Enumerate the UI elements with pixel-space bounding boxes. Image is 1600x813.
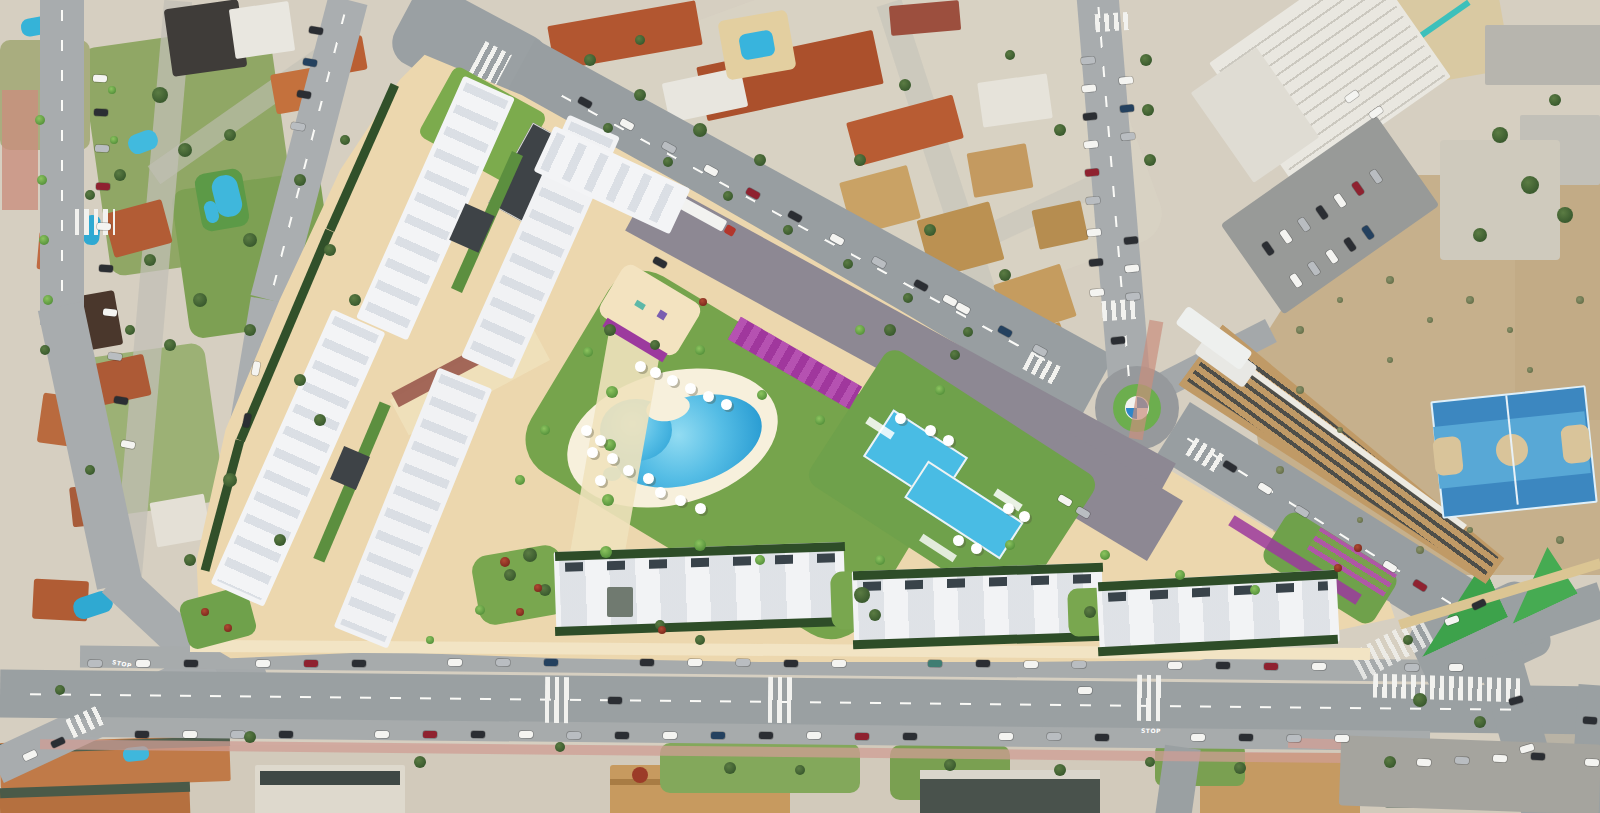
tree <box>754 154 766 166</box>
car <box>95 144 109 151</box>
tree <box>224 129 236 141</box>
car <box>640 658 654 665</box>
tree <box>1384 756 1396 768</box>
car <box>1082 84 1097 92</box>
palm-tree <box>39 235 49 245</box>
car <box>1287 734 1301 741</box>
car <box>471 730 485 737</box>
aerial-map: STOPSTOP <box>0 0 1600 813</box>
crosswalk-south-2 <box>768 677 794 723</box>
car <box>423 730 437 737</box>
tree <box>85 465 95 475</box>
tree <box>223 473 237 487</box>
tree <box>555 742 565 752</box>
car <box>759 731 773 738</box>
tree <box>152 87 168 103</box>
car <box>1124 236 1139 244</box>
red-flower-bush <box>658 626 666 634</box>
crosswalk-left <box>75 209 115 235</box>
car <box>1121 132 1136 140</box>
tree <box>294 174 306 186</box>
palm-tree <box>1250 585 1260 595</box>
car <box>1083 112 1098 120</box>
car <box>135 730 149 737</box>
tree <box>963 327 973 337</box>
car <box>1081 56 1096 64</box>
tree <box>1084 606 1096 618</box>
palm-tree <box>1175 570 1185 580</box>
tree <box>144 254 156 266</box>
tree <box>854 587 870 603</box>
palm-tree <box>600 546 612 558</box>
car <box>88 659 102 666</box>
tree <box>795 765 805 775</box>
tree <box>55 685 65 695</box>
tree <box>294 374 306 386</box>
sun-umbrella <box>595 435 606 446</box>
bm-dark-row-edge <box>920 770 1100 779</box>
car <box>375 730 389 737</box>
tree <box>724 762 736 774</box>
palm-tree <box>475 605 485 615</box>
tl-roof-white-1 <box>229 1 295 59</box>
car <box>544 658 558 665</box>
car <box>1095 733 1109 740</box>
car <box>1191 733 1205 740</box>
car <box>688 658 702 665</box>
sun-umbrella <box>703 391 714 402</box>
car <box>93 74 107 81</box>
car <box>1583 716 1597 724</box>
car <box>855 732 869 739</box>
car <box>448 658 462 665</box>
shrub <box>1427 317 1433 323</box>
tree <box>1005 50 1015 60</box>
palm-tree <box>426 636 434 644</box>
car <box>807 731 821 738</box>
tree <box>164 339 176 351</box>
red-flower-bush <box>500 557 510 567</box>
tr-school-bldg-1 <box>1485 25 1600 85</box>
tree <box>695 635 705 645</box>
stop-marking-2: STOP <box>1137 727 1165 735</box>
shrub <box>1387 357 1393 363</box>
palm-tree <box>602 494 614 506</box>
shrub <box>1467 527 1473 533</box>
tree <box>1473 228 1487 242</box>
car <box>1126 292 1141 300</box>
tree <box>244 731 256 743</box>
tree <box>340 135 350 145</box>
car <box>496 658 510 665</box>
tree <box>1492 127 1508 143</box>
shrub <box>1296 386 1304 394</box>
car <box>1119 76 1134 84</box>
car <box>96 182 110 189</box>
rowA-entry-bldg <box>607 587 633 617</box>
car <box>736 658 750 665</box>
car <box>1089 258 1104 266</box>
car <box>1090 288 1105 296</box>
red-flower-bush <box>1354 544 1362 552</box>
tr-school-court <box>1440 140 1560 260</box>
tree <box>783 225 793 235</box>
futsal-key-left <box>1432 436 1464 477</box>
car <box>1168 661 1182 668</box>
red-flower-bush <box>1334 564 1342 572</box>
tree <box>1054 124 1066 136</box>
tree <box>349 294 361 306</box>
car <box>256 659 270 666</box>
tree <box>869 609 881 621</box>
tree <box>1145 757 1155 767</box>
red-flower-bush <box>224 624 232 632</box>
sun-umbrella <box>925 425 936 436</box>
sun-umbrella <box>643 473 654 484</box>
car <box>784 659 798 666</box>
sun-umbrella <box>667 375 678 386</box>
sun-umbrella <box>721 399 732 410</box>
palm-tree <box>1005 540 1015 550</box>
bm-white-bldg-panels <box>260 771 400 785</box>
tree <box>604 324 616 336</box>
tree <box>1142 104 1154 116</box>
tree <box>899 79 911 91</box>
car <box>832 659 846 666</box>
car <box>1125 264 1140 272</box>
palm-tree <box>606 386 618 398</box>
tree <box>324 244 336 256</box>
tree <box>1413 693 1427 707</box>
car <box>183 730 197 737</box>
palm-tree <box>108 86 116 94</box>
shrub <box>1576 296 1584 304</box>
palm-tree <box>604 439 616 451</box>
tree <box>314 414 326 426</box>
tree <box>244 324 256 336</box>
palm-tree <box>855 325 865 335</box>
tree <box>903 293 913 303</box>
se-lot <box>1339 735 1600 813</box>
tree <box>635 35 645 45</box>
car <box>1264 662 1278 669</box>
tree <box>999 269 1011 281</box>
tree <box>1234 762 1246 774</box>
car <box>1072 660 1086 667</box>
red-flower-bush <box>534 584 542 592</box>
shrub <box>1466 296 1474 304</box>
sun-umbrella <box>635 361 646 372</box>
tree <box>693 123 707 137</box>
tree <box>723 191 733 201</box>
palm-tree <box>583 347 593 357</box>
tree <box>1140 54 1152 66</box>
shrub <box>1386 276 1394 284</box>
tree <box>274 534 286 546</box>
sun-umbrella <box>595 475 606 486</box>
sun-umbrella <box>675 495 686 506</box>
car <box>1405 663 1419 670</box>
shrub <box>1337 427 1343 433</box>
shrub <box>1276 466 1284 474</box>
palm-tree <box>110 136 118 144</box>
tree <box>950 350 960 360</box>
crosswalk-ne-top <box>1094 12 1131 32</box>
tree <box>178 143 192 157</box>
car <box>1493 754 1507 761</box>
sun-umbrella <box>695 503 706 514</box>
car <box>1086 196 1101 204</box>
left-road-dash <box>61 10 63 310</box>
tree <box>504 569 516 581</box>
car <box>1078 686 1092 693</box>
tm-sport-court <box>889 0 961 36</box>
tree <box>40 345 50 355</box>
shrub <box>1357 517 1363 523</box>
car <box>663 731 677 738</box>
palm-tree <box>935 385 945 395</box>
car <box>519 730 533 737</box>
tree <box>1521 176 1539 194</box>
palm-tree <box>755 555 765 565</box>
crosswalk-south-1 <box>545 677 571 723</box>
tree <box>584 54 596 66</box>
bm-church-dome <box>632 767 648 783</box>
tree <box>243 233 257 247</box>
tree <box>1144 154 1156 166</box>
car <box>1111 336 1126 344</box>
car <box>1084 140 1099 148</box>
palm-tree <box>757 390 767 400</box>
tree <box>944 759 956 771</box>
palm-tree <box>540 425 550 435</box>
sun-umbrella <box>943 435 954 446</box>
shrub <box>1296 326 1304 334</box>
sun-umbrella <box>685 383 696 394</box>
car <box>1087 228 1102 236</box>
car <box>97 222 111 229</box>
tree <box>843 259 853 269</box>
car <box>304 659 318 666</box>
sun-umbrella <box>1019 511 1030 522</box>
car <box>103 308 118 316</box>
tree <box>184 554 196 566</box>
car <box>999 732 1013 739</box>
car <box>136 659 150 666</box>
shrub <box>1527 367 1533 373</box>
car <box>184 659 198 666</box>
car <box>1085 168 1100 176</box>
sun-umbrella <box>607 453 618 464</box>
car <box>1120 104 1135 112</box>
sidewalk-pink-left <box>2 90 38 210</box>
palm-tree <box>35 115 45 125</box>
palm-tree <box>694 539 706 551</box>
car <box>608 696 622 703</box>
tree <box>603 123 613 133</box>
sun-umbrella <box>655 487 666 498</box>
car <box>1455 756 1469 763</box>
car <box>1216 661 1230 668</box>
tree <box>650 340 660 350</box>
car <box>1449 663 1463 670</box>
car <box>231 730 245 737</box>
palm-tree <box>875 555 885 565</box>
futsal-key-right <box>1560 424 1592 465</box>
tree <box>854 154 866 166</box>
car <box>108 352 123 361</box>
tree <box>1403 635 1413 645</box>
tree <box>414 756 426 768</box>
palm-tree <box>695 345 705 355</box>
car <box>903 732 917 739</box>
sun-umbrella <box>1003 503 1014 514</box>
sun-umbrella <box>895 413 906 424</box>
tree <box>193 293 207 307</box>
tree <box>1549 94 1561 106</box>
tree <box>924 224 936 236</box>
car <box>1312 662 1326 669</box>
palm-tree <box>43 295 53 305</box>
red-flower-bush <box>516 608 524 616</box>
car <box>928 659 942 666</box>
shrub <box>1416 546 1424 554</box>
shrub <box>1507 327 1513 333</box>
palm-tree <box>1100 550 1110 560</box>
crosswalk-south-3 <box>1137 675 1163 721</box>
red-flower-bush <box>201 608 209 616</box>
tm-roof-white-2 <box>977 73 1053 127</box>
sun-umbrella <box>971 543 982 554</box>
car <box>1335 734 1349 741</box>
shrub <box>1556 536 1564 544</box>
car <box>567 731 581 738</box>
tree <box>1557 207 1573 223</box>
car <box>1417 758 1431 765</box>
car <box>279 730 293 737</box>
car <box>1239 733 1253 740</box>
tm-roof-tan-5 <box>967 143 1034 198</box>
red-flower-bush <box>699 298 707 306</box>
car <box>99 264 113 272</box>
sun-umbrella <box>587 447 598 458</box>
tree <box>663 157 673 167</box>
car <box>1047 732 1061 739</box>
tree <box>884 324 896 336</box>
tree <box>85 190 95 200</box>
car <box>711 731 725 738</box>
tree <box>1054 764 1066 776</box>
car <box>615 731 629 738</box>
tree <box>125 325 135 335</box>
palm-tree <box>37 175 47 185</box>
car <box>1585 758 1599 766</box>
car <box>1024 660 1038 667</box>
car <box>1531 752 1545 759</box>
car <box>976 659 990 666</box>
palm-tree <box>815 415 825 425</box>
tree <box>523 548 537 562</box>
crosswalk-rb-north <box>1101 299 1138 321</box>
sun-umbrella <box>650 367 661 378</box>
shrub <box>1337 297 1343 303</box>
car <box>94 108 108 115</box>
tree <box>634 89 646 101</box>
sun-umbrella <box>953 535 964 546</box>
car <box>352 659 366 666</box>
sun-umbrella <box>623 465 634 476</box>
palm-tree <box>515 475 525 485</box>
sun-umbrella <box>581 425 592 436</box>
tree <box>114 169 126 181</box>
tree <box>1474 716 1486 728</box>
